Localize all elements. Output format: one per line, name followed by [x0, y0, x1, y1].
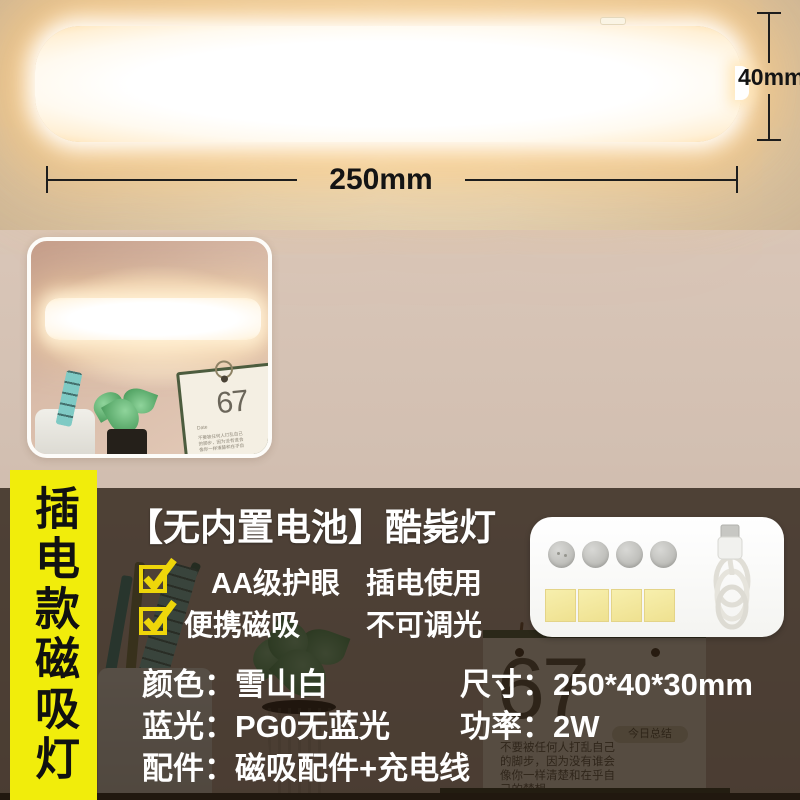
inset-calendar: 67 Date 不要被任何人打乱自己 的脚步，因为没有谁会 像你一样清楚和在乎自 — [176, 362, 272, 458]
magnet-disc — [616, 541, 643, 568]
dim-cap — [736, 166, 738, 193]
height-dimension-label: 40mm — [738, 64, 800, 91]
feature-portable-magnetic: 便携磁吸 — [184, 602, 300, 644]
inset-plant-pot — [107, 429, 147, 458]
inset-light-bar — [45, 298, 261, 340]
checkbox-icon — [137, 556, 177, 594]
product-poster: 67 今日总结 不要被任何人打乱自己 的脚步，因为没有谁会 像你一样清楚和在乎自… — [0, 0, 800, 800]
side-banner-text: 插电款磁吸灯 — [10, 485, 97, 785]
spec-bluelight-value: PG0无蓝光 — [235, 709, 390, 744]
feature-aa-eyecare: AA级护眼 — [211, 560, 340, 602]
adhesive-pad — [578, 589, 609, 622]
spec-size-key: 尺寸： — [460, 667, 553, 702]
adhesive-pad — [644, 589, 675, 622]
magnet-disc — [548, 541, 575, 568]
spec-color-key: 颜色： — [142, 667, 235, 702]
inset-calendar-day-number: 67 — [215, 384, 250, 421]
inset-calendar-page: 67 Date 不要被任何人打乱自己 的脚步，因为没有谁会 像你一样清楚和在乎自 — [179, 365, 272, 458]
spec-color-value: 雪山白 — [235, 667, 328, 702]
adhesive-pad — [545, 589, 576, 622]
led-light-bar — [35, 26, 741, 142]
spec-accessories-value: 磁吸配件+充电线 — [235, 751, 470, 786]
spec-power-value: 2W — [553, 709, 600, 744]
feature-plugin-use: 插电使用 — [366, 560, 482, 602]
side-banner: 插电款磁吸灯 — [10, 470, 97, 800]
adhesive-pad — [611, 589, 642, 622]
spec-bluelight: 蓝光：PG0无蓝光 — [142, 701, 390, 746]
spec-color: 颜色：雪山白 — [142, 659, 328, 704]
dim-line-horizontal — [465, 179, 737, 181]
checkbox-icon — [137, 598, 177, 636]
inset-photo: 67 Date 不要被任何人打乱自己 的脚步，因为没有谁会 像你一样清楚和在乎自 — [27, 237, 272, 458]
dim-line-vertical — [768, 13, 770, 63]
width-dimension-label: 250mm — [297, 163, 465, 197]
inset-calendar-hole — [221, 375, 229, 383]
accessories-photo — [530, 517, 784, 637]
spec-size-value: 250*40*30mm — [553, 667, 753, 702]
spec-accessories-key: 配件： — [142, 751, 235, 786]
inset-calendar-date-label: Date — [197, 425, 208, 432]
mounting-tab — [600, 17, 626, 25]
magnet-disc — [650, 541, 677, 568]
dim-line-horizontal — [47, 179, 297, 181]
spec-bluelight-key: 蓝光： — [142, 709, 235, 744]
feature-no-dimming: 不可调光 — [366, 602, 482, 644]
product-title: 【无内置电池】酷毙灯 — [126, 497, 496, 551]
usb-cable — [690, 523, 770, 633]
spec-power-key: 功率： — [460, 709, 553, 744]
spec-power: 功率：2W — [460, 701, 600, 746]
dim-line-vertical — [768, 94, 770, 140]
magnet-disc — [582, 541, 609, 568]
spec-accessories: 配件：磁吸配件+充电线 — [142, 743, 470, 788]
dim-cap — [757, 139, 781, 141]
spec-size: 尺寸：250*40*30mm — [460, 659, 753, 704]
